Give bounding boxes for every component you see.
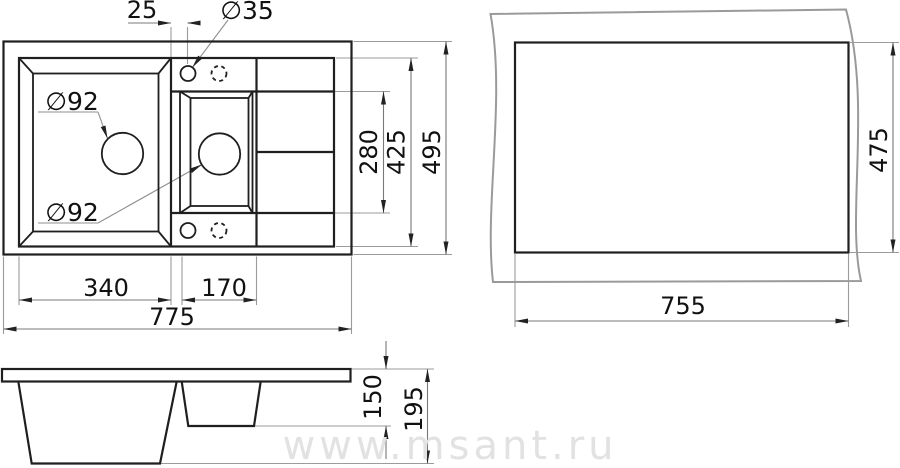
cutout-rectangle bbox=[515, 43, 849, 253]
dim-small-bowl-length: 280 bbox=[355, 129, 383, 175]
dim-main-drain-diameter: ∅92 bbox=[45, 87, 99, 116]
dim-small-bowl-width: 170 bbox=[201, 274, 247, 302]
small-drain-hole bbox=[199, 133, 240, 174]
alt-faucet-hole-bottom-dashed bbox=[212, 223, 227, 238]
sink-rim-profile bbox=[2, 369, 351, 382]
dim-cutout-depth: 475 bbox=[865, 127, 893, 173]
dim-faucet-offset: 25 bbox=[127, 0, 158, 24]
dim-cutout-width: 755 bbox=[660, 292, 706, 320]
dim-main-bowl-width: 340 bbox=[83, 274, 129, 302]
main-drain-hole bbox=[102, 133, 143, 174]
dim-faucet-hole-diameter: ∅35 bbox=[220, 0, 274, 25]
watermark-text: www.msant.ru bbox=[282, 423, 617, 468]
top-view: 25 ∅35 ∅92 ∅92 280 425 4 bbox=[4, 0, 453, 334]
alt-faucet-hole-top-dashed bbox=[212, 66, 227, 81]
cutout-view: 475 755 bbox=[491, 10, 900, 328]
countertop-outline-break-lines bbox=[491, 10, 862, 283]
top-view-dimensions: 25 ∅35 ∅92 ∅92 280 425 4 bbox=[4, 0, 453, 334]
leader-line-main-drain bbox=[98, 112, 108, 139]
faucet-hole-top bbox=[181, 66, 196, 81]
technical-drawing-page: 25 ∅35 ∅92 ∅92 280 425 4 bbox=[0, 0, 900, 468]
leader-line-small-drain bbox=[98, 165, 202, 224]
dim-overall-width: 775 bbox=[149, 303, 195, 331]
cutout-dimensions: 475 755 bbox=[515, 43, 899, 328]
main-bowl-profile bbox=[18, 382, 176, 464]
leader-line-faucet-hole bbox=[192, 20, 228, 67]
dim-small-bowl-depth: 150 bbox=[359, 374, 387, 420]
small-bowl-profile bbox=[182, 382, 261, 427]
dim-overall-depth: 495 bbox=[418, 129, 446, 175]
dim-bowl-zone-length: 425 bbox=[383, 129, 411, 175]
dim-small-drain-diameter: ∅92 bbox=[45, 198, 99, 227]
sink-technical-drawing: 25 ∅35 ∅92 ∅92 280 425 4 bbox=[0, 0, 900, 468]
faucet-hole-bottom bbox=[181, 223, 196, 238]
